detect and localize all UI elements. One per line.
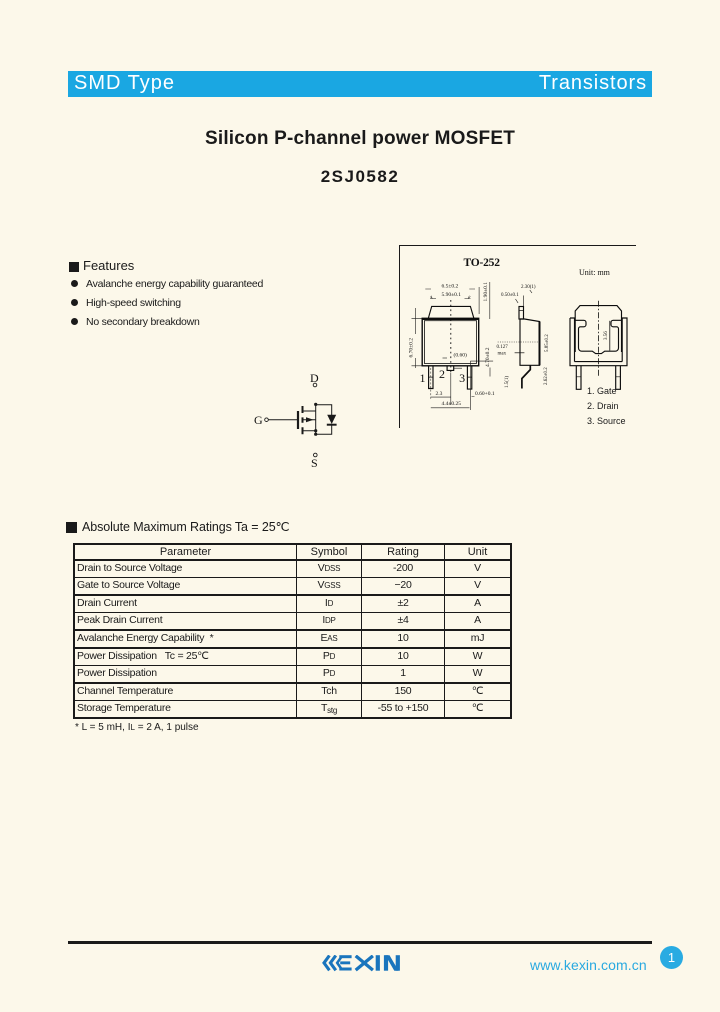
svg-text:G: G — [254, 413, 263, 427]
svg-text:3. Source: 3. Source — [587, 416, 626, 426]
svg-text:Unit: mm: Unit: mm — [579, 268, 611, 277]
svg-text:2.30(1): 2.30(1) — [521, 285, 536, 290]
svg-text:0.50±0.1: 0.50±0.1 — [501, 293, 519, 298]
svg-text:6.5±0.2: 6.5±0.2 — [442, 284, 459, 290]
svg-text:1.90±0.1: 1.90±0.1 — [483, 282, 489, 302]
svg-text:4.70±0.2: 4.70±0.2 — [485, 347, 491, 367]
svg-text:2. Drain: 2. Drain — [587, 401, 619, 411]
svg-text:TO-252: TO-252 — [464, 257, 501, 269]
svg-text:2: 2 — [439, 367, 445, 381]
svg-text:1.5(1): 1.5(1) — [505, 376, 510, 388]
svg-text:(0.60): (0.60) — [454, 352, 467, 359]
svg-text:S: S — [311, 456, 318, 470]
svg-text:6.70±0.2: 6.70±0.2 — [409, 338, 415, 358]
svg-text:5.90±0.1: 5.90±0.1 — [442, 292, 462, 298]
svg-text:0.127: 0.127 — [497, 345, 509, 350]
svg-text:3: 3 — [459, 371, 465, 385]
svg-text:4.4±0.25: 4.4±0.25 — [442, 401, 462, 407]
svg-text:3.56: 3.56 — [604, 331, 609, 340]
svg-text:5.85±0.2: 5.85±0.2 — [545, 334, 550, 352]
svg-text:0.60+0.1: 0.60+0.1 — [475, 391, 495, 397]
svg-text:2.3: 2.3 — [436, 391, 443, 397]
svg-text:2.62±0.2: 2.62±0.2 — [544, 367, 549, 385]
svg-text:1. Gate: 1. Gate — [587, 386, 617, 396]
svg-text:1: 1 — [420, 371, 426, 385]
svg-text:max: max — [498, 352, 507, 357]
